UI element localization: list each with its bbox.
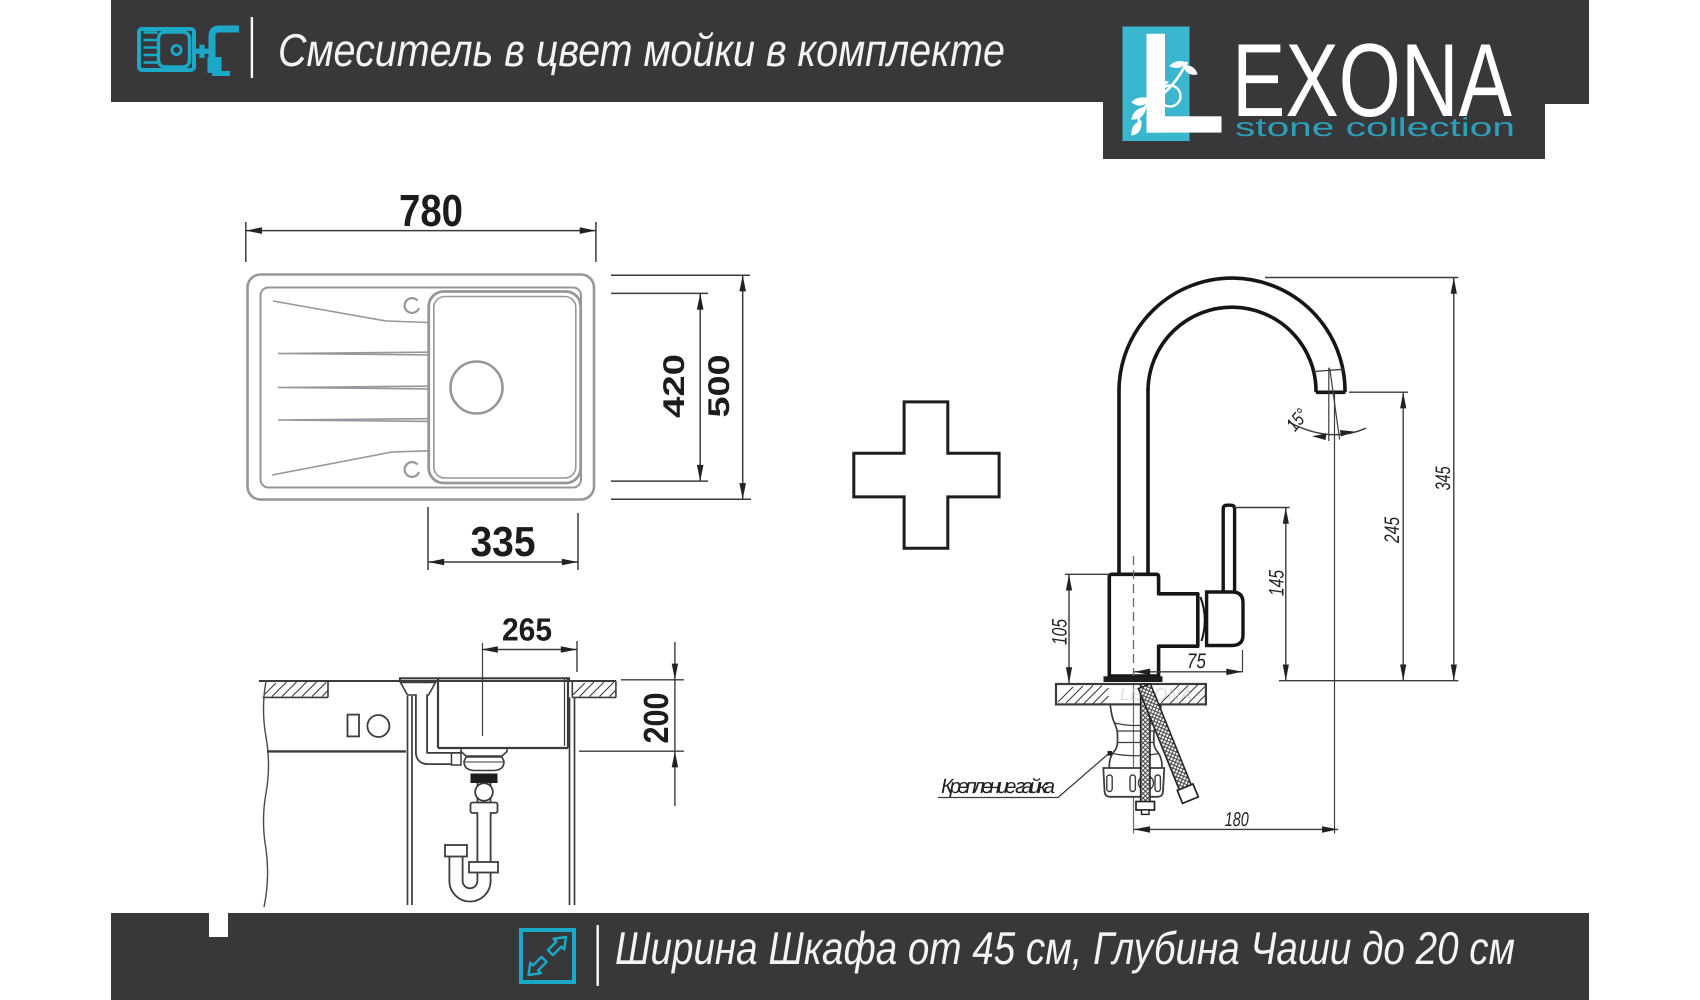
svg-text:105: 105 — [1049, 619, 1072, 645]
svg-text:420: 420 — [658, 354, 691, 418]
svg-text:Крепление гайка: Крепление гайка — [941, 775, 1055, 798]
svg-text:335: 335 — [471, 518, 536, 565]
svg-text:265: 265 — [502, 612, 552, 648]
svg-text:345: 345 — [1432, 466, 1455, 490]
svg-text:245: 245 — [1381, 517, 1404, 544]
svg-text:180: 180 — [1225, 809, 1249, 831]
svg-text:145: 145 — [1266, 570, 1289, 596]
svg-text:Ширина Шкафа от 45 см, Глубин: Ширина Шкафа от 45 см, Глубина Чаши до 2… — [615, 922, 1515, 974]
svg-text:780: 780 — [399, 185, 463, 236]
svg-text:stone collection: stone collection — [1235, 112, 1515, 142]
svg-text:75: 75 — [1187, 650, 1206, 673]
svg-text:200: 200 — [637, 693, 676, 744]
svg-text:500: 500 — [703, 355, 736, 418]
svg-text:Смеситель в цвет мойки в компл: Смеситель в цвет мойки в комплекте — [278, 24, 1005, 76]
